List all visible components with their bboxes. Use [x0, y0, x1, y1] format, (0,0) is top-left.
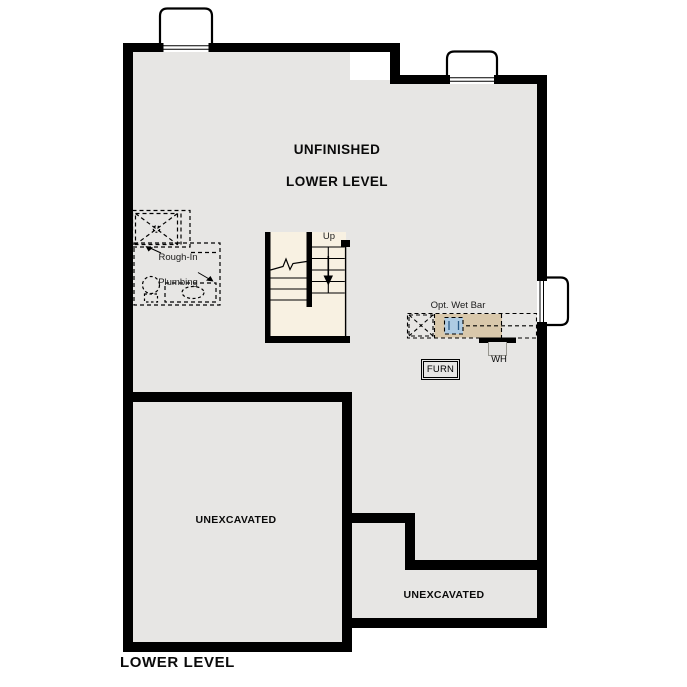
furnace: FURN — [421, 359, 460, 380]
wet-bar-sink — [445, 318, 464, 335]
wall-unexcavated-right-top — [405, 560, 547, 570]
stair-wall-bottom — [265, 336, 350, 343]
wall-left — [123, 43, 133, 652]
stair-wall-left — [265, 232, 271, 343]
unexcavated-right-label: UNEXCAVATED — [374, 589, 514, 601]
floor-plan: UNFINISHED LOWER LEVEL Up Rough-In Plumb… — [0, 0, 687, 687]
furnace-label: FURN — [423, 361, 458, 378]
floor-left — [128, 48, 350, 647]
room-title-line1: UNFINISHED — [294, 142, 381, 157]
room-title: UNFINISHED LOWER LEVEL — [257, 142, 417, 190]
window-well-top-right — [447, 52, 497, 80]
floor-areas — [128, 48, 544, 647]
wet-bar-label: Opt. Wet Bar — [417, 300, 499, 311]
staircase — [265, 232, 350, 343]
room-title-line2: LOWER LEVEL — [286, 174, 388, 189]
window-right — [537, 281, 547, 322]
wall-bottom-right — [342, 618, 547, 628]
plan-title: LOWER LEVEL — [120, 654, 235, 671]
water-heater-label: WH — [487, 354, 511, 365]
unexcavated-left-label: UNEXCAVATED — [166, 514, 306, 526]
wall-unexcavated-left-top — [128, 392, 352, 402]
plumbing-label-line1: Rough-In — [158, 252, 197, 263]
wall-bottom-left — [123, 642, 352, 652]
window-top-left — [164, 43, 209, 52]
stairs-up-label: Up — [316, 231, 342, 242]
stair-wall-middle — [307, 232, 313, 307]
wall-right — [537, 75, 547, 628]
rough-in-plumbing-label: Rough-In Plumbing — [136, 252, 220, 290]
window-top-right — [450, 75, 494, 84]
wall-step-horizontal — [342, 513, 415, 523]
plumbing-label-line2: Plumbing — [158, 277, 198, 288]
floor-plan-drawing — [0, 0, 687, 687]
window-well-top-left — [160, 9, 212, 48]
